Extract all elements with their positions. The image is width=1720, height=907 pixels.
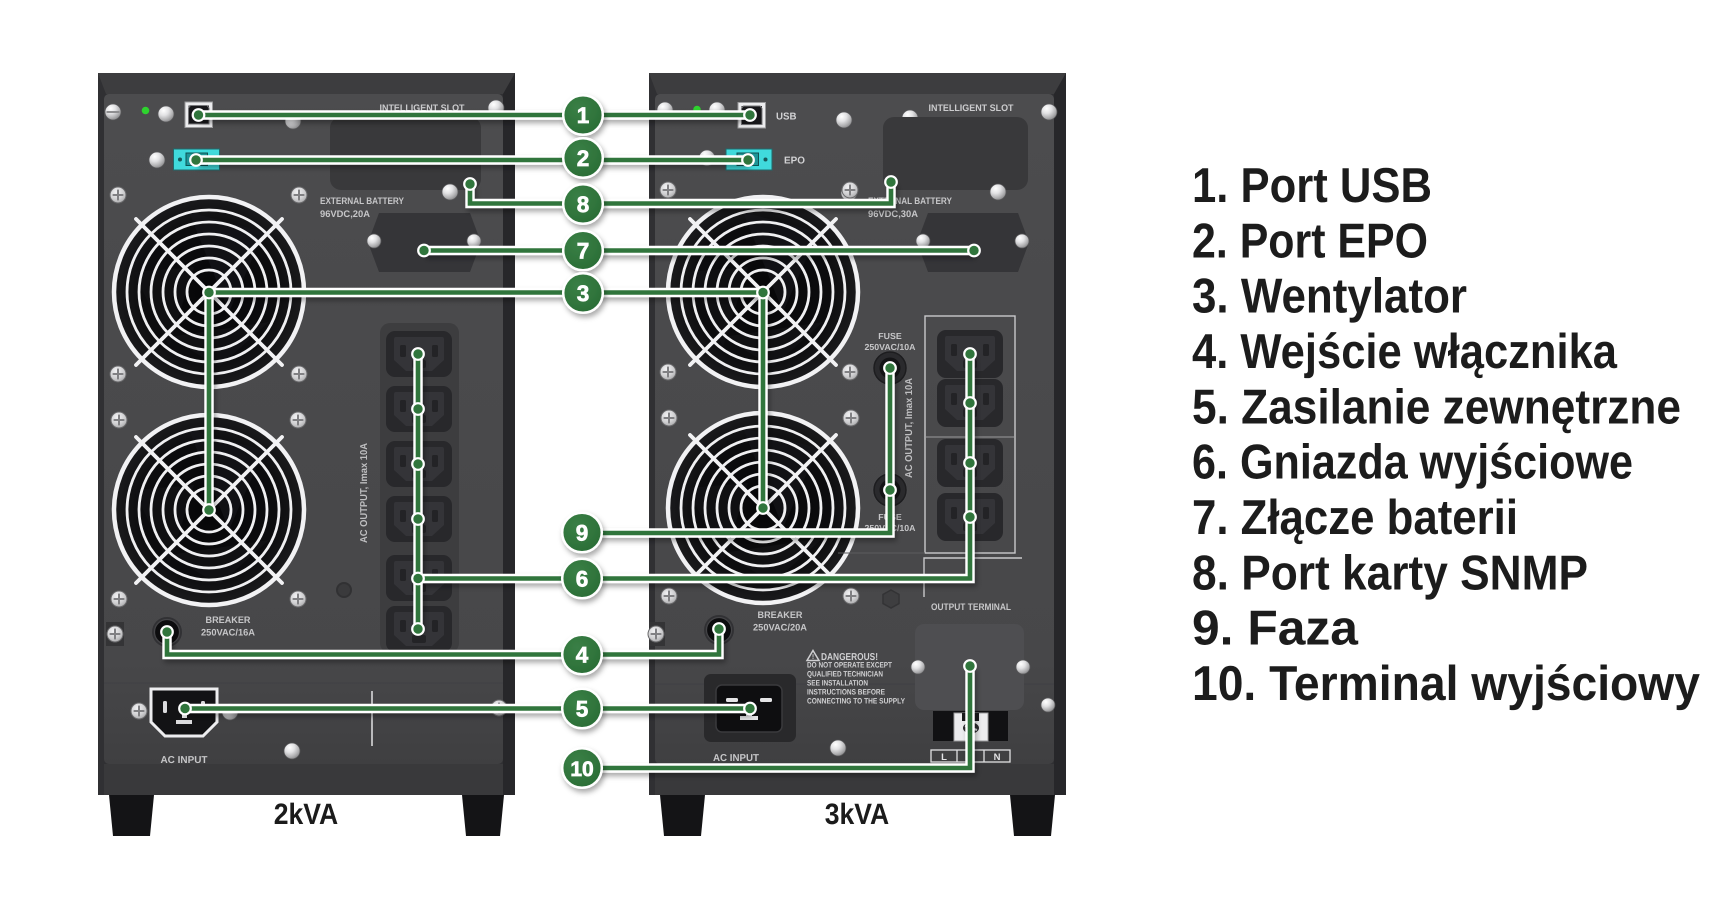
svg-text:3. Wentylator: 3. Wentylator [1192, 270, 1467, 324]
svg-text:250VAC/10A: 250VAC/10A [865, 342, 917, 352]
svg-text:10: 10 [570, 758, 593, 781]
svg-text:6: 6 [576, 567, 589, 592]
svg-text:7: 7 [577, 239, 590, 264]
svg-text:BREAKER: BREAKER [758, 610, 803, 621]
svg-text:EPO: EPO [784, 156, 805, 167]
svg-text:7. Złącze baterii: 7. Złącze baterii [1192, 491, 1518, 545]
svg-text:1. Port USB: 1. Port USB [1192, 159, 1432, 213]
svg-text:OUTPUT TERMINAL: OUTPUT TERMINAL [931, 602, 1011, 613]
svg-text:CONNECTING TO THE SUPPLY: CONNECTING TO THE SUPPLY [807, 697, 906, 706]
svg-text:250VAC/16A: 250VAC/16A [201, 628, 255, 639]
svg-text:3: 3 [577, 281, 590, 306]
svg-text:96VDC,30A: 96VDC,30A [868, 209, 918, 220]
svg-text:N: N [994, 752, 1001, 763]
svg-text:4. Wejście włącznika: 4. Wejście włącznika [1192, 325, 1618, 379]
svg-text:8: 8 [577, 192, 590, 217]
svg-text:USB: USB [776, 112, 797, 123]
svg-text:INSTRUCTIONS BEFORE: INSTRUCTIONS BEFORE [807, 688, 885, 697]
svg-text:5. Zasilanie zewnętrzne: 5. Zasilanie zewnętrzne [1192, 380, 1681, 434]
svg-text:9: 9 [576, 521, 589, 546]
svg-text:AC INPUT: AC INPUT [161, 755, 208, 766]
svg-text:3kVA: 3kVA [825, 798, 889, 831]
svg-text:2kVA: 2kVA [274, 798, 338, 831]
svg-text:9. Faza: 9. Faza [1192, 602, 1359, 656]
svg-text:SEE INSTALLATION: SEE INSTALLATION [807, 679, 868, 688]
svg-text:5: 5 [576, 697, 589, 722]
svg-text:1: 1 [577, 103, 590, 128]
svg-text:BREAKER: BREAKER [206, 615, 251, 626]
svg-text:AC INPUT: AC INPUT [713, 753, 759, 764]
svg-text:QUALIFIED TECHNICIAN: QUALIFIED TECHNICIAN [807, 670, 883, 679]
svg-text:250VAC/20A: 250VAC/20A [753, 623, 807, 634]
svg-text:2. Port EPO: 2. Port EPO [1192, 214, 1428, 268]
svg-text:10. Terminal wyjściowy: 10. Terminal wyjściowy [1192, 657, 1700, 711]
svg-text:8. Port karty SNMP: 8. Port karty SNMP [1192, 546, 1588, 600]
svg-text:4: 4 [576, 643, 589, 668]
svg-text:AC OUTPUT, Imax 10A: AC OUTPUT, Imax 10A [904, 378, 915, 478]
svg-text:AC OUTPUT, Imax 10A: AC OUTPUT, Imax 10A [359, 443, 370, 543]
svg-text:96VDC,20A: 96VDC,20A [320, 209, 370, 220]
svg-text:FUSE: FUSE [878, 331, 902, 341]
svg-text:DO NOT OPERATE EXCEPT: DO NOT OPERATE EXCEPT [807, 661, 892, 670]
svg-text:EXTERNAL BATTERY: EXTERNAL BATTERY [320, 196, 405, 207]
svg-text:L: L [941, 752, 947, 763]
svg-text:6. Gniazda wyjściowe: 6. Gniazda wyjściowe [1192, 436, 1633, 490]
svg-text:INTELLIGENT SLOT: INTELLIGENT SLOT [929, 103, 1014, 114]
svg-text:2: 2 [577, 146, 590, 171]
